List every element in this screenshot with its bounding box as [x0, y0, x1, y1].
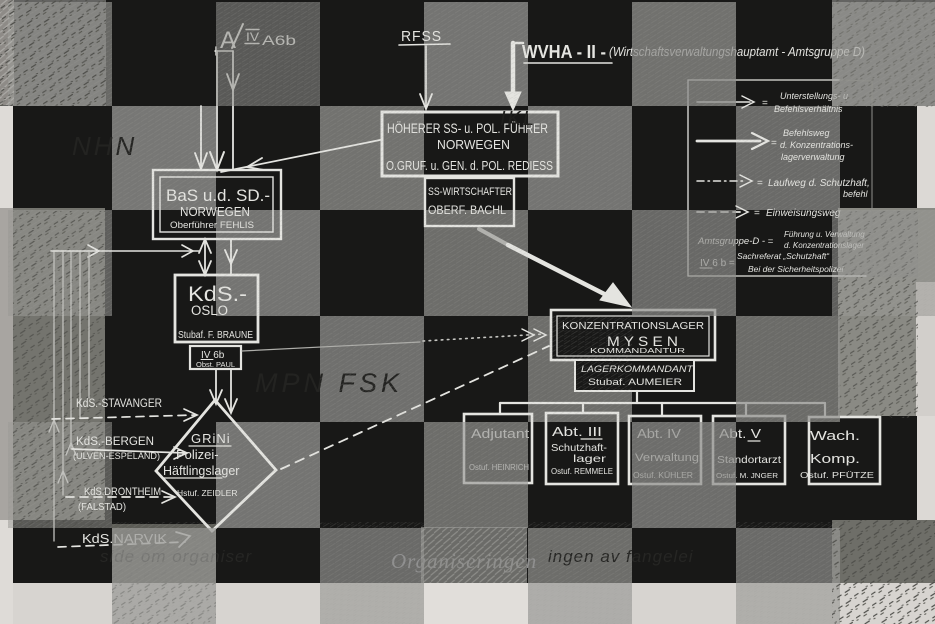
svg-text:Ostuf. PFÜTZE: Ostuf. PFÜTZE [800, 471, 874, 480]
svg-text:Sachreferat „Schutzhaft“: Sachreferat „Schutzhaft“ [737, 251, 830, 261]
svg-text:Ostuf. REMMELE: Ostuf. REMMELE [551, 467, 613, 476]
svg-text:KdS.-STAVANGER: KdS.-STAVANGER [76, 398, 162, 410]
svg-text:Abt. III: Abt. III [552, 424, 602, 439]
svg-text:NORWEGEN: NORWEGEN [437, 137, 510, 152]
svg-text:lager: lager [573, 453, 607, 465]
svg-text:befehl: befehl [843, 189, 869, 199]
svg-text:Komp.: Komp. [810, 451, 860, 466]
svg-text:Stubaf. F. BRAUNE: Stubaf. F. BRAUNE [178, 330, 253, 341]
svg-text:Bei der Sicherheitspolizei: Bei der Sicherheitspolizei [748, 264, 845, 274]
svg-text:WVHA - II -: WVHA - II - [522, 42, 606, 62]
svg-text:Polizei-: Polizei- [176, 447, 219, 462]
svg-text:Wach.: Wach. [810, 428, 860, 443]
svg-text:SS-WIRTSCHAFTER: SS-WIRTSCHAFTER [428, 186, 512, 198]
svg-text:Obst. PAUL: Obst. PAUL [196, 360, 235, 369]
